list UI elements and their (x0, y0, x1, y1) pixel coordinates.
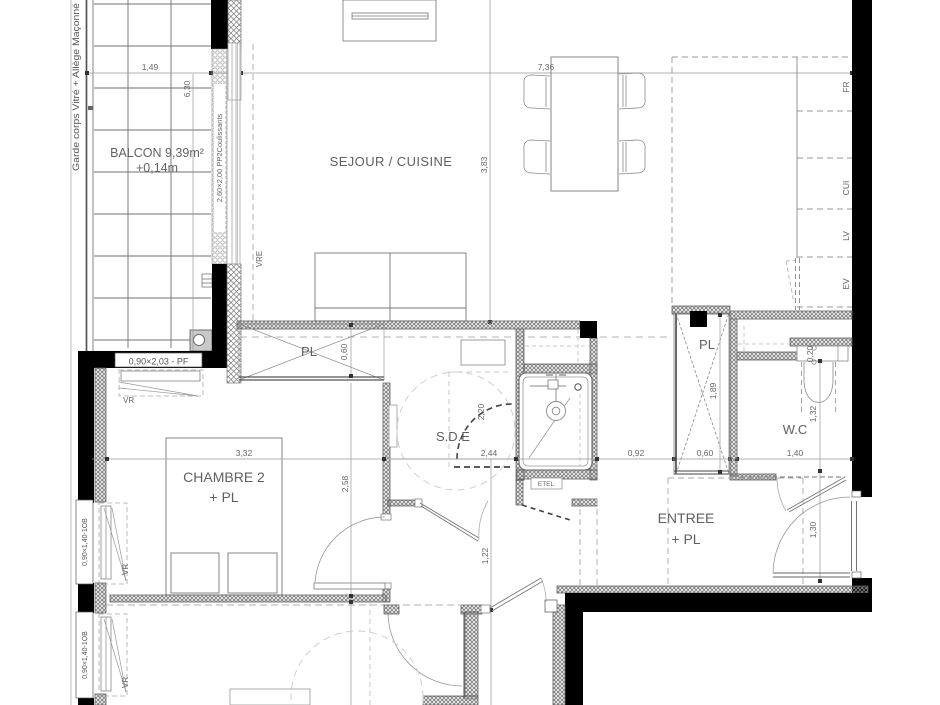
svg-text:CUI: CUI (841, 181, 851, 196)
svg-text:6,30: 6,30 (182, 80, 192, 97)
svg-text:VR: VR (123, 396, 134, 405)
svg-text:0,92: 0,92 (628, 448, 645, 458)
svg-text:0,90×1,40-1OB: 0,90×1,40-1OB (82, 518, 89, 566)
svg-text:+ PL: + PL (671, 531, 700, 547)
svg-text:0,60: 0,60 (339, 343, 349, 360)
svg-text:3,32: 3,32 (236, 448, 253, 458)
svg-text:2,60×2,00 PP2Coulissants: 2,60×2,00 PP2Coulissants (215, 113, 224, 202)
svg-text:+ PL: + PL (209, 489, 238, 505)
svg-text:VR: VR (121, 677, 130, 688)
svg-text:1,40: 1,40 (787, 448, 804, 458)
svg-text:PL: PL (699, 337, 715, 352)
svg-text:PL: PL (301, 344, 317, 359)
svg-text:Garde corps Vitré + Allège Maç: Garde corps Vitré + Allège Maçonné (71, 3, 82, 171)
svg-text:1,22: 1,22 (480, 547, 490, 564)
svg-text:2,20: 2,20 (476, 403, 486, 420)
svg-text:1,30: 1,30 (808, 521, 818, 538)
svg-text:0,60: 0,60 (697, 448, 714, 458)
svg-text:FR: FR (841, 81, 851, 92)
svg-text:7,36: 7,36 (538, 62, 555, 72)
svg-text:ETEL: ETEL (538, 481, 555, 488)
svg-text:1,49: 1,49 (142, 62, 159, 72)
svg-text:ENTREE: ENTREE (658, 510, 715, 526)
svg-text:1,89: 1,89 (708, 382, 718, 399)
svg-text:2,44: 2,44 (481, 448, 498, 458)
svg-text:0,90×1,40-1OB: 0,90×1,40-1OB (82, 631, 89, 679)
svg-text:2,58: 2,58 (340, 475, 350, 492)
svg-text:LV: LV (841, 231, 851, 241)
svg-text:VR: VR (121, 564, 130, 575)
svg-text:3,83: 3,83 (479, 156, 489, 173)
svg-text:CHAMBRE 2: CHAMBRE 2 (183, 469, 265, 485)
svg-text:+0,14m: +0,14m (136, 161, 178, 175)
svg-text:0,90×2,03 - PF: 0,90×2,03 - PF (129, 357, 189, 367)
svg-text:S.D.E: S.D.E (436, 429, 470, 444)
svg-text:0,20: 0,20 (805, 345, 815, 362)
svg-text:EV: EV (841, 278, 851, 290)
svg-text:VRE: VRE (255, 251, 264, 267)
svg-text:W.C: W.C (783, 422, 808, 437)
svg-text:1,32: 1,32 (808, 405, 818, 422)
svg-text:SEJOUR / CUISINE: SEJOUR / CUISINE (330, 154, 453, 169)
svg-text:BALCON 9,39m²: BALCON 9,39m² (110, 146, 204, 160)
